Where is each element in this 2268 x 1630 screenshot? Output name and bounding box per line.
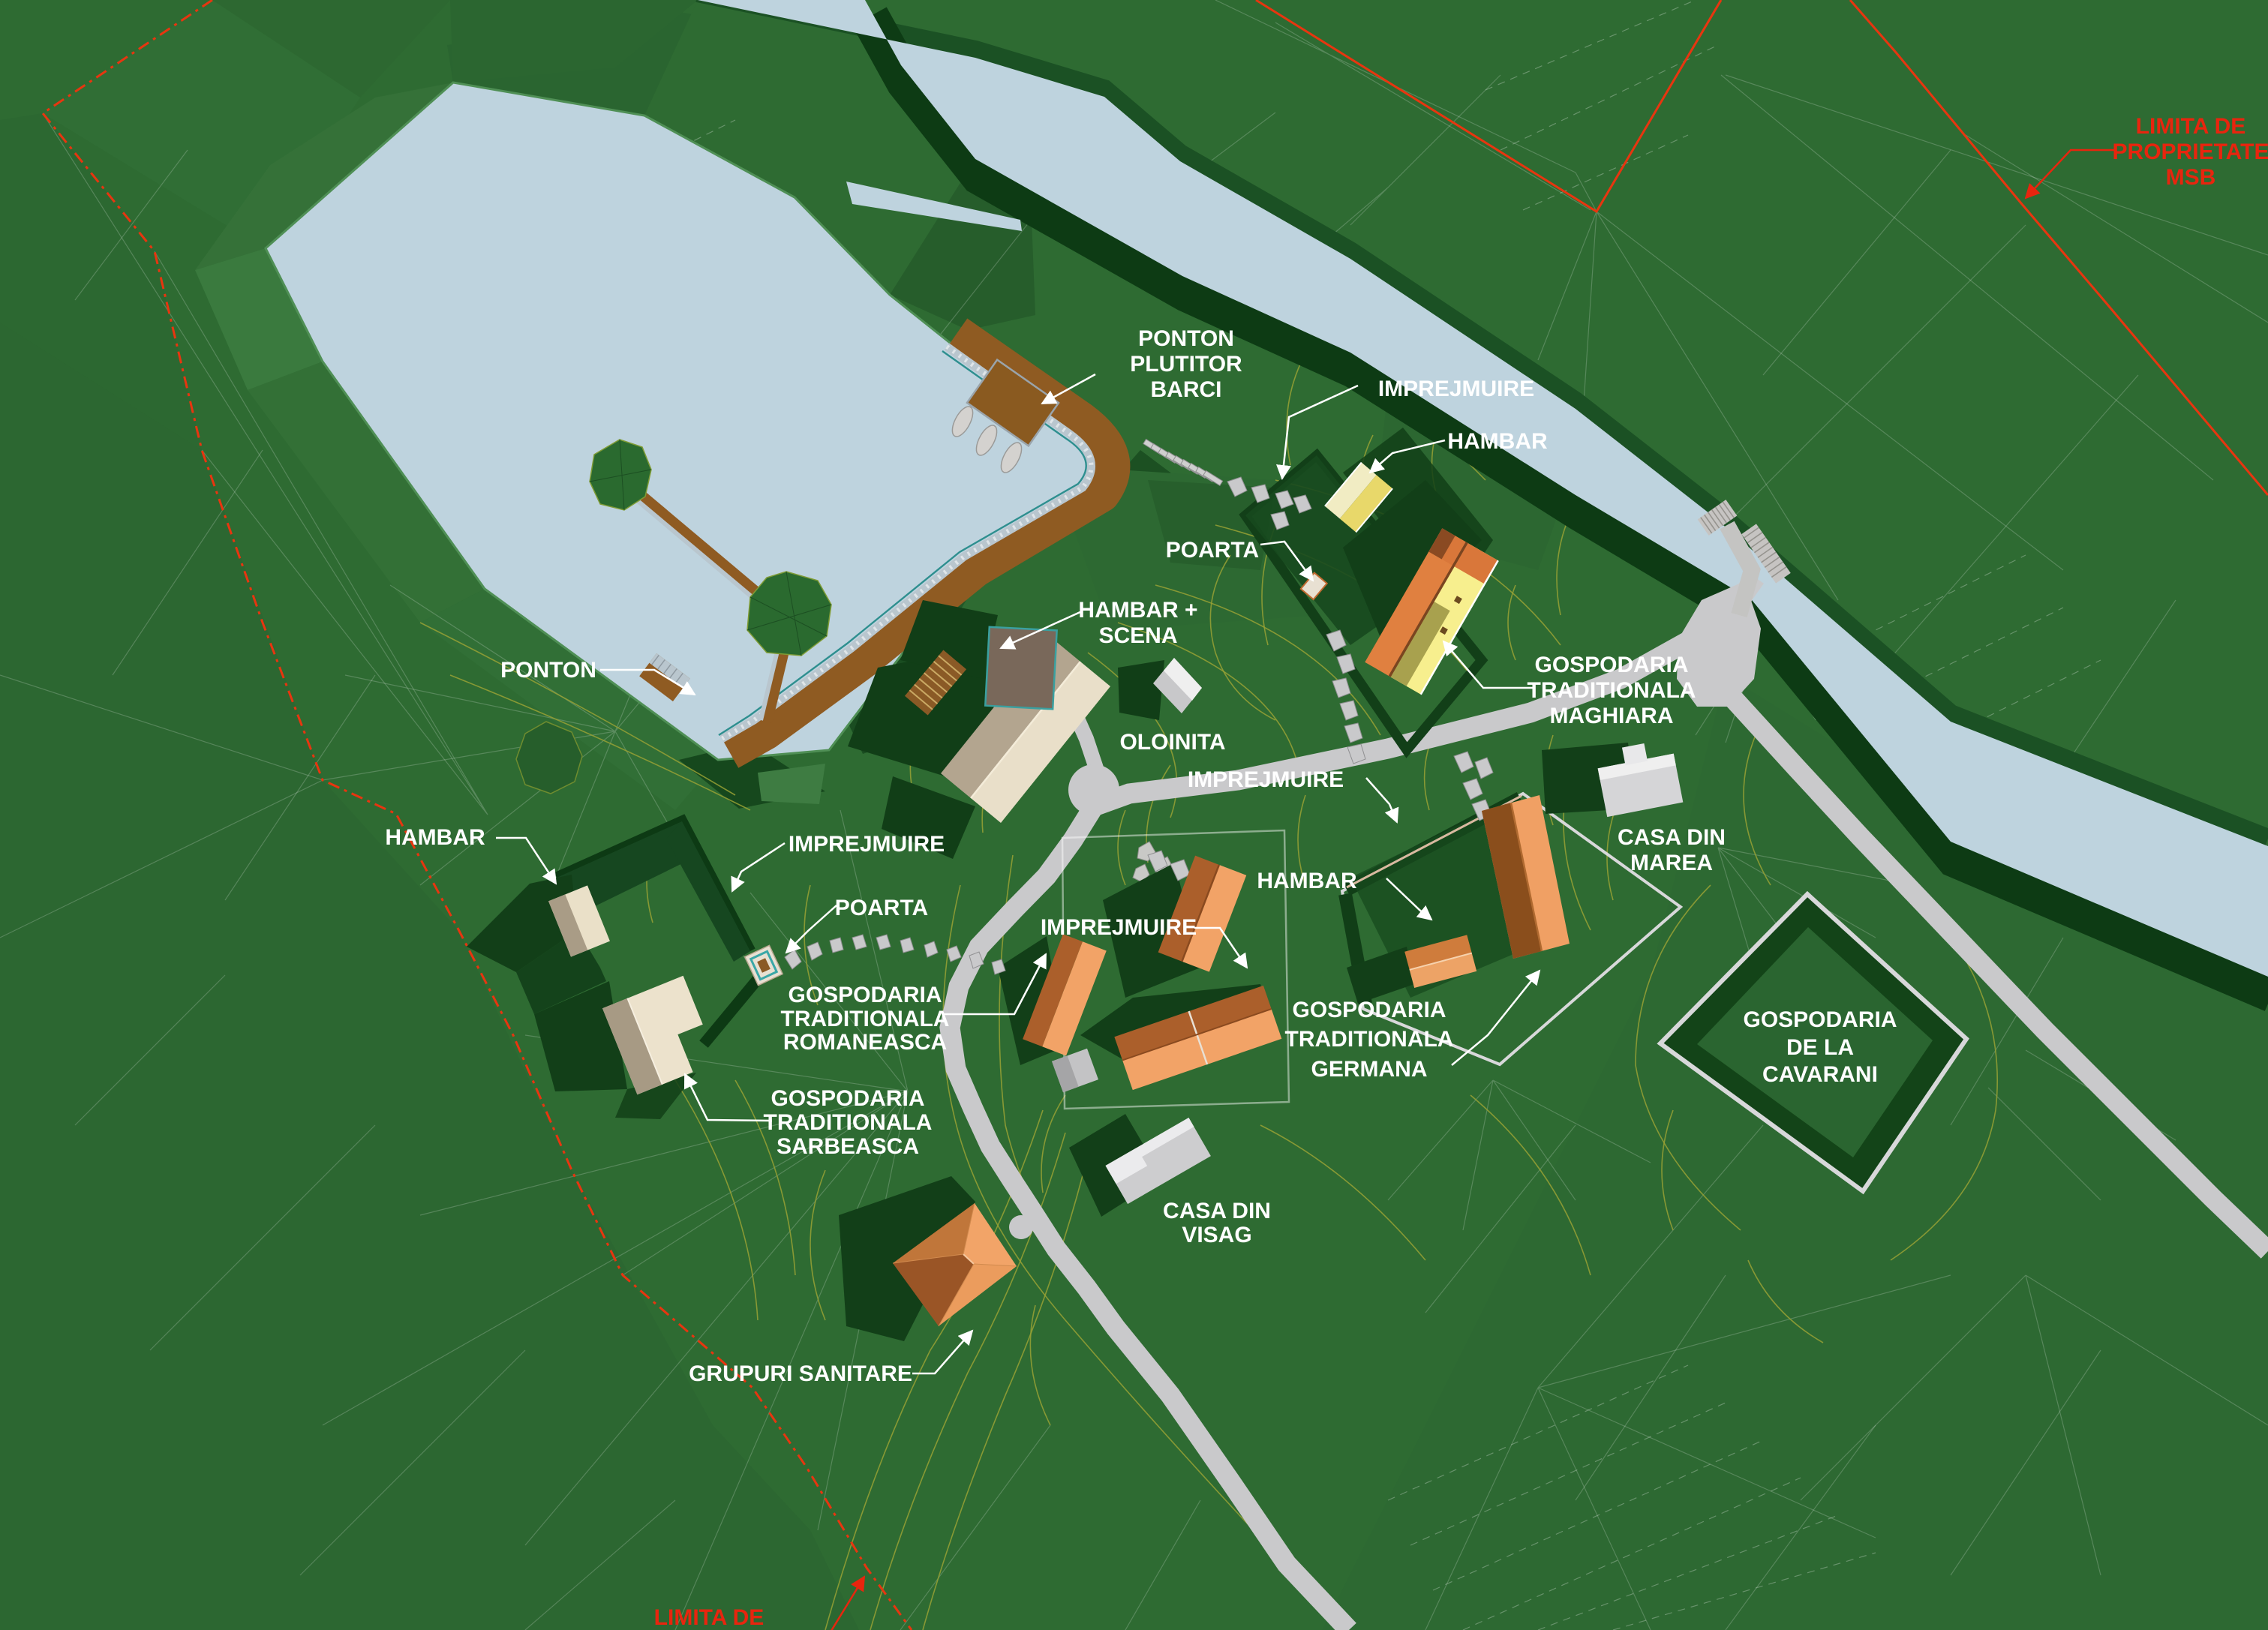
svg-text:GERMANA: GERMANA — [1311, 1057, 1428, 1082]
svg-text:LIMITA DE: LIMITA DE — [654, 1605, 765, 1630]
svg-text:MAGHIARA: MAGHIARA — [1550, 704, 1674, 728]
svg-text:PONTON: PONTON — [1138, 326, 1234, 351]
svg-text:IMPREJMUIRE: IMPREJMUIRE — [789, 832, 945, 857]
svg-text:TRADITIONALA: TRADITIONALA — [1528, 678, 1696, 703]
svg-text:HAMBAR: HAMBAR — [1447, 429, 1548, 454]
svg-text:PLUTITOR: PLUTITOR — [1130, 352, 1242, 377]
svg-text:TRADITIONALA: TRADITIONALA — [764, 1110, 933, 1135]
svg-text:BARCI: BARCI — [1151, 377, 1222, 402]
svg-text:GOSPODARIA: GOSPODARIA — [1743, 1007, 1897, 1032]
svg-text:GOSPODARIA: GOSPODARIA — [1292, 998, 1446, 1022]
svg-text:DE LA: DE LA — [1786, 1035, 1854, 1060]
svg-text:IMPREJMUIRE: IMPREJMUIRE — [1188, 767, 1344, 792]
svg-text:IMPREJMUIRE: IMPREJMUIRE — [1041, 915, 1197, 940]
svg-text:TRADITIONALA: TRADITIONALA — [781, 1007, 950, 1031]
svg-text:POARTA: POARTA — [1166, 538, 1259, 563]
svg-text:GOSPODARIA: GOSPODARIA — [771, 1086, 924, 1111]
svg-text:ROMANEASCA: ROMANEASCA — [783, 1030, 947, 1055]
svg-text:OLOINITA: OLOINITA — [1119, 730, 1225, 755]
svg-text:PONTON: PONTON — [500, 658, 596, 683]
svg-text:PROPRIETATE: PROPRIETATE — [2113, 140, 2268, 164]
svg-text:SCENA: SCENA — [1098, 623, 1177, 648]
svg-text:GOSPODARIA: GOSPODARIA — [788, 983, 942, 1007]
svg-text:CASA DIN: CASA DIN — [1618, 825, 1726, 850]
svg-text:CAVARANI: CAVARANI — [1762, 1062, 1878, 1087]
svg-text:IMPREJMUIRE: IMPREJMUIRE — [1378, 377, 1534, 401]
svg-text:TRADITIONALA: TRADITIONALA — [1285, 1027, 1454, 1052]
svg-text:SARBEASCA: SARBEASCA — [777, 1134, 919, 1159]
svg-text:CASA DIN: CASA DIN — [1163, 1199, 1271, 1223]
svg-text:LIMITA DE: LIMITA DE — [2136, 114, 2246, 139]
svg-text:MAREA: MAREA — [1630, 851, 1713, 875]
svg-text:HAMBAR: HAMBAR — [385, 825, 485, 850]
svg-text:HAMBAR +: HAMBAR + — [1078, 598, 1197, 623]
svg-text:POARTA: POARTA — [835, 896, 928, 920]
svg-text:GRUPURI SANITARE: GRUPURI SANITARE — [689, 1361, 912, 1386]
svg-text:VISAG: VISAG — [1182, 1223, 1251, 1247]
svg-text:MSB: MSB — [2166, 165, 2216, 190]
svg-text:GOSPODARIA: GOSPODARIA — [1534, 653, 1688, 677]
svg-text:HAMBAR: HAMBAR — [1257, 869, 1357, 893]
